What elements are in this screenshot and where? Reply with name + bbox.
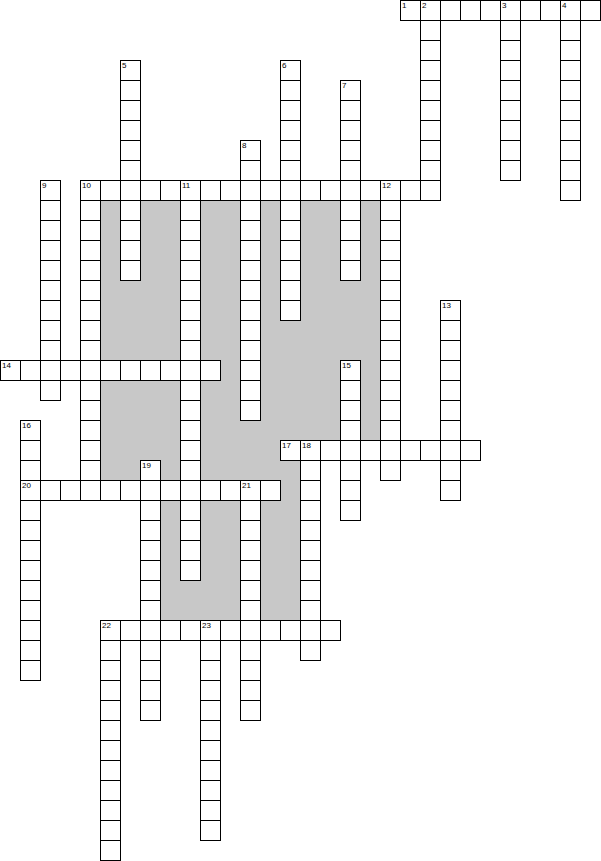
- crossword-cell[interactable]: [280, 160, 301, 181]
- crossword-cell[interactable]: [160, 360, 181, 381]
- crossword-cell[interactable]: [380, 240, 401, 261]
- crossword-cell[interactable]: [240, 640, 261, 661]
- crossword-cell[interactable]: [40, 200, 61, 221]
- crossword-cell[interactable]: [180, 620, 201, 641]
- crossword-cell[interactable]: [80, 440, 101, 461]
- crossword-grid: 1234567891011121314151617181920212223: [0, 0, 601, 861]
- crossword-cell[interactable]: [200, 180, 221, 201]
- crossword-cell[interactable]: [220, 480, 241, 501]
- crossword-cell[interactable]: [300, 560, 321, 581]
- crossword-cell[interactable]: [300, 180, 321, 201]
- crossword-cell[interactable]: [100, 720, 121, 741]
- crossword-cell[interactable]: [560, 40, 581, 61]
- crossword-cell[interactable]: [340, 460, 361, 481]
- crossword-cell[interactable]: [80, 420, 101, 441]
- crossword-cell[interactable]: [280, 440, 301, 461]
- crossword-cell[interactable]: [300, 620, 321, 641]
- crossword-cell[interactable]: [200, 360, 221, 381]
- crossword-cell[interactable]: [40, 300, 61, 321]
- crossword-cell[interactable]: [120, 220, 141, 241]
- crossword-cell[interactable]: [240, 500, 261, 521]
- crossword-cell[interactable]: [100, 700, 121, 721]
- crossword-cell[interactable]: [20, 560, 41, 581]
- crossword-cell[interactable]: [180, 540, 201, 561]
- crossword-cell[interactable]: [180, 220, 201, 241]
- crossword-cell[interactable]: [240, 260, 261, 281]
- crossword-cell[interactable]: [200, 780, 221, 801]
- crossword-cell[interactable]: [100, 760, 121, 781]
- crossword-cell[interactable]: [280, 140, 301, 161]
- crossword-cell[interactable]: [80, 300, 101, 321]
- crossword-cell[interactable]: [420, 80, 441, 101]
- crossword-cell[interactable]: [340, 380, 361, 401]
- crossword-cell[interactable]: [80, 240, 101, 261]
- crossword-cell[interactable]: [20, 440, 41, 461]
- crossword-cell[interactable]: [240, 160, 261, 181]
- crossword-cell[interactable]: [100, 180, 121, 201]
- crossword-cell[interactable]: [180, 520, 201, 541]
- crossword-cell[interactable]: [240, 280, 261, 301]
- crossword-cell[interactable]: [280, 200, 301, 221]
- crossword-cell[interactable]: [280, 300, 301, 321]
- crossword-cell[interactable]: [180, 360, 201, 381]
- crossword-cell[interactable]: [40, 360, 61, 381]
- crossword-cell[interactable]: [240, 600, 261, 621]
- crossword-cell[interactable]: [380, 460, 401, 481]
- crossword-cell[interactable]: [80, 460, 101, 481]
- crossword-cell[interactable]: [260, 620, 281, 641]
- crossword-cell[interactable]: [180, 200, 201, 221]
- crossword-cell[interactable]: [100, 740, 121, 761]
- crossword-cell[interactable]: [320, 180, 341, 201]
- crossword-cell[interactable]: [500, 40, 521, 61]
- crossword-cell[interactable]: [20, 520, 41, 541]
- crossword-cell[interactable]: [480, 0, 501, 21]
- crossword-cell[interactable]: [560, 0, 581, 21]
- crossword-cell[interactable]: [440, 480, 461, 501]
- crossword-cell[interactable]: [180, 340, 201, 361]
- crossword-cell[interactable]: [420, 0, 441, 21]
- crossword-cell[interactable]: [300, 540, 321, 561]
- crossword-cell[interactable]: [420, 20, 441, 41]
- crossword-cell[interactable]: [340, 240, 361, 261]
- crossword-cell[interactable]: [240, 240, 261, 261]
- crossword-cell[interactable]: [180, 280, 201, 301]
- crossword-cell[interactable]: [80, 200, 101, 221]
- crossword-cell[interactable]: [240, 660, 261, 681]
- crossword-cell[interactable]: [80, 220, 101, 241]
- crossword-cell[interactable]: [200, 660, 221, 681]
- crossword-cell[interactable]: [240, 560, 261, 581]
- crossword-cell[interactable]: [560, 180, 581, 201]
- shaded-region: [280, 460, 300, 620]
- crossword-cell[interactable]: [220, 620, 241, 641]
- crossword-cell[interactable]: [300, 600, 321, 621]
- crossword-cell[interactable]: [20, 540, 41, 561]
- crossword-cell[interactable]: [120, 60, 141, 81]
- crossword-cell[interactable]: [500, 160, 521, 181]
- crossword-cell[interactable]: [0, 360, 21, 381]
- crossword-cell[interactable]: [100, 620, 121, 641]
- crossword-cell[interactable]: [80, 340, 101, 361]
- crossword-cell[interactable]: [120, 240, 141, 261]
- crossword-cell[interactable]: [440, 340, 461, 361]
- crossword-cell[interactable]: [180, 460, 201, 481]
- crossword-cell[interactable]: [100, 360, 121, 381]
- crossword-cell[interactable]: [560, 80, 581, 101]
- crossword-cell[interactable]: [160, 620, 181, 641]
- crossword-cell[interactable]: [240, 680, 261, 701]
- crossword-cell[interactable]: [240, 400, 261, 421]
- crossword-cell[interactable]: [240, 540, 261, 561]
- crossword-cell[interactable]: [380, 300, 401, 321]
- crossword-cell[interactable]: [380, 360, 401, 381]
- crossword-cell[interactable]: [360, 440, 381, 461]
- crossword-cell[interactable]: [380, 340, 401, 361]
- crossword-cell[interactable]: [240, 140, 261, 161]
- crossword-cell[interactable]: [500, 120, 521, 141]
- crossword-cell[interactable]: [100, 480, 121, 501]
- crossword-cell[interactable]: [280, 180, 301, 201]
- crossword-cell[interactable]: [200, 640, 221, 661]
- crossword-cell[interactable]: [140, 500, 161, 521]
- crossword-cell[interactable]: [300, 460, 321, 481]
- crossword-cell[interactable]: [380, 320, 401, 341]
- crossword-cell[interactable]: [240, 700, 261, 721]
- crossword-cell[interactable]: [360, 180, 381, 201]
- crossword-cell[interactable]: [420, 440, 441, 461]
- crossword-cell[interactable]: [200, 820, 221, 841]
- crossword-cell[interactable]: [440, 460, 461, 481]
- crossword-cell[interactable]: [200, 800, 221, 821]
- crossword-cell[interactable]: [240, 360, 261, 381]
- crossword-cell[interactable]: [440, 400, 461, 421]
- crossword-cell[interactable]: [140, 460, 161, 481]
- crossword-cell[interactable]: [20, 580, 41, 601]
- crossword-cell[interactable]: [140, 540, 161, 561]
- crossword-cell[interactable]: [40, 340, 61, 361]
- crossword-cell[interactable]: [140, 480, 161, 501]
- crossword-cell[interactable]: [20, 640, 41, 661]
- crossword-cell[interactable]: [240, 180, 261, 201]
- crossword-cell[interactable]: [140, 560, 161, 581]
- crossword-cell[interactable]: [560, 120, 581, 141]
- crossword-cell[interactable]: [40, 260, 61, 281]
- crossword-cell[interactable]: [380, 280, 401, 301]
- crossword-cell[interactable]: [100, 660, 121, 681]
- crossword-cell[interactable]: [460, 0, 481, 21]
- crossword-cell[interactable]: [580, 0, 601, 21]
- crossword-cell[interactable]: [80, 400, 101, 421]
- crossword-cell[interactable]: [120, 80, 141, 101]
- crossword-cell[interactable]: [300, 580, 321, 601]
- crossword-cell[interactable]: [300, 500, 321, 521]
- crossword-cell[interactable]: [340, 360, 361, 381]
- crossword-cell[interactable]: [140, 660, 161, 681]
- crossword-cell[interactable]: [300, 640, 321, 661]
- crossword-cell[interactable]: [200, 480, 221, 501]
- crossword-cell[interactable]: [280, 60, 301, 81]
- crossword-cell[interactable]: [260, 480, 281, 501]
- crossword-cell[interactable]: [280, 120, 301, 141]
- crossword-cell[interactable]: [280, 620, 301, 641]
- crossword-cell[interactable]: [120, 100, 141, 121]
- crossword-cell[interactable]: [420, 60, 441, 81]
- crossword-cell[interactable]: [160, 480, 181, 501]
- crossword-cell[interactable]: [340, 200, 361, 221]
- crossword-cell[interactable]: [280, 260, 301, 281]
- crossword-cell[interactable]: [140, 600, 161, 621]
- crossword-cell[interactable]: [340, 440, 361, 461]
- crossword-cell[interactable]: [220, 180, 241, 201]
- crossword-cell[interactable]: [20, 420, 41, 441]
- crossword-cell[interactable]: [180, 400, 201, 421]
- crossword-cell[interactable]: [280, 80, 301, 101]
- crossword-cell[interactable]: [240, 220, 261, 241]
- crossword-cell[interactable]: [340, 80, 361, 101]
- crossword-cell[interactable]: [140, 580, 161, 601]
- crossword-cell[interactable]: [340, 500, 361, 521]
- crossword-cell[interactable]: [420, 180, 441, 201]
- crossword-cell[interactable]: [20, 480, 41, 501]
- crossword-cell[interactable]: [340, 140, 361, 161]
- crossword-cell[interactable]: [140, 360, 161, 381]
- crossword-cell[interactable]: [200, 700, 221, 721]
- crossword-cell[interactable]: [320, 620, 341, 641]
- crossword-cell[interactable]: [560, 60, 581, 81]
- crossword-cell[interactable]: [40, 240, 61, 261]
- crossword-cell[interactable]: [120, 160, 141, 181]
- crossword-cell[interactable]: [80, 380, 101, 401]
- crossword-cell[interactable]: [140, 520, 161, 541]
- crossword-cell[interactable]: [240, 300, 261, 321]
- crossword-cell[interactable]: [420, 160, 441, 181]
- crossword-cell[interactable]: [560, 20, 581, 41]
- crossword-cell[interactable]: [200, 680, 221, 701]
- crossword-cell[interactable]: [120, 180, 141, 201]
- crossword-cell[interactable]: [140, 180, 161, 201]
- crossword-cell[interactable]: [400, 440, 421, 461]
- crossword-cell[interactable]: [100, 780, 121, 801]
- crossword-cell[interactable]: [80, 180, 101, 201]
- crossword-cell[interactable]: [380, 440, 401, 461]
- crossword-cell[interactable]: [180, 560, 201, 581]
- crossword-cell[interactable]: [240, 580, 261, 601]
- crossword-cell[interactable]: [340, 420, 361, 441]
- crossword-cell[interactable]: [380, 200, 401, 221]
- crossword-cell[interactable]: [300, 480, 321, 501]
- crossword-cell[interactable]: [80, 360, 101, 381]
- crossword-cell[interactable]: [80, 320, 101, 341]
- crossword-cell[interactable]: [40, 220, 61, 241]
- crossword-cell[interactable]: [560, 140, 581, 161]
- crossword-cell[interactable]: [40, 280, 61, 301]
- crossword-cell[interactable]: [40, 480, 61, 501]
- crossword-cell[interactable]: [120, 200, 141, 221]
- crossword-cell[interactable]: [100, 680, 121, 701]
- crossword-cell[interactable]: [200, 620, 221, 641]
- crossword-cell[interactable]: [380, 420, 401, 441]
- crossword-cell[interactable]: [380, 380, 401, 401]
- crossword-cell[interactable]: [340, 220, 361, 241]
- crossword-cell[interactable]: [240, 320, 261, 341]
- crossword-cell[interactable]: [140, 620, 161, 641]
- crossword-cell[interactable]: [40, 320, 61, 341]
- crossword-cell[interactable]: [340, 260, 361, 281]
- crossword-cell[interactable]: [20, 620, 41, 641]
- crossword-cell[interactable]: [400, 0, 421, 21]
- crossword-cell[interactable]: [380, 400, 401, 421]
- crossword-cell[interactable]: [180, 480, 201, 501]
- crossword-cell[interactable]: [260, 180, 281, 201]
- crossword-cell[interactable]: [40, 380, 61, 401]
- crossword-cell[interactable]: [340, 400, 361, 421]
- crossword-cell[interactable]: [120, 360, 141, 381]
- crossword-cell[interactable]: [20, 660, 41, 681]
- crossword-cell[interactable]: [180, 260, 201, 281]
- crossword-cell[interactable]: [380, 220, 401, 241]
- crossword-cell[interactable]: [240, 200, 261, 221]
- crossword-cell[interactable]: [180, 380, 201, 401]
- crossword-cell[interactable]: [100, 640, 121, 661]
- crossword-cell[interactable]: [60, 480, 81, 501]
- crossword-cell[interactable]: [100, 800, 121, 821]
- crossword-cell[interactable]: [40, 180, 61, 201]
- crossword-cell[interactable]: [100, 820, 121, 841]
- crossword-cell[interactable]: [400, 180, 421, 201]
- crossword-cell[interactable]: [420, 140, 441, 161]
- crossword-cell[interactable]: [200, 720, 221, 741]
- crossword-cell[interactable]: [240, 380, 261, 401]
- crossword-cell[interactable]: [200, 740, 221, 761]
- crossword-cell[interactable]: [560, 100, 581, 121]
- crossword-cell[interactable]: [560, 160, 581, 181]
- crossword-cell[interactable]: [420, 120, 441, 141]
- crossword-cell[interactable]: [340, 180, 361, 201]
- crossword-cell[interactable]: [80, 480, 101, 501]
- crossword-cell[interactable]: [440, 320, 461, 341]
- crossword-cell[interactable]: [280, 240, 301, 261]
- crossword-cell[interactable]: [180, 440, 201, 461]
- crossword-cell[interactable]: [120, 620, 141, 641]
- crossword-cell[interactable]: [440, 300, 461, 321]
- crossword-cell[interactable]: [280, 280, 301, 301]
- crossword-cell[interactable]: [440, 360, 461, 381]
- crossword-cell[interactable]: [340, 480, 361, 501]
- crossword-cell[interactable]: [240, 520, 261, 541]
- crossword-cell[interactable]: [240, 620, 261, 641]
- crossword-cell[interactable]: [120, 480, 141, 501]
- crossword-cell[interactable]: [200, 760, 221, 781]
- crossword-cell[interactable]: [500, 60, 521, 81]
- crossword-cell[interactable]: [440, 420, 461, 441]
- crossword-cell[interactable]: [300, 440, 321, 461]
- crossword-cell[interactable]: [500, 20, 521, 41]
- crossword-cell[interactable]: [240, 480, 261, 501]
- crossword-cell[interactable]: [500, 80, 521, 101]
- crossword-cell[interactable]: [380, 260, 401, 281]
- crossword-cell[interactable]: [420, 40, 441, 61]
- crossword-cell[interactable]: [100, 840, 121, 861]
- crossword-cell[interactable]: [140, 680, 161, 701]
- crossword-cell[interactable]: [120, 120, 141, 141]
- crossword-cell[interactable]: [440, 380, 461, 401]
- crossword-cell[interactable]: [20, 460, 41, 481]
- crossword-cell[interactable]: [140, 700, 161, 721]
- crossword-cell[interactable]: [20, 600, 41, 621]
- crossword-cell[interactable]: [460, 440, 481, 461]
- crossword-cell[interactable]: [180, 180, 201, 201]
- crossword-cell[interactable]: [420, 100, 441, 121]
- crossword-cell[interactable]: [500, 100, 521, 121]
- crossword-cell[interactable]: [180, 420, 201, 441]
- crossword-cell[interactable]: [160, 180, 181, 201]
- crossword-cell[interactable]: [20, 500, 41, 521]
- crossword-cell[interactable]: [520, 0, 541, 21]
- crossword-cell[interactable]: [140, 640, 161, 661]
- crossword-cell[interactable]: [80, 280, 101, 301]
- crossword-cell[interactable]: [280, 100, 301, 121]
- crossword-cell[interactable]: [540, 0, 561, 21]
- crossword-cell[interactable]: [380, 180, 401, 201]
- crossword-cell[interactable]: [180, 320, 201, 341]
- crossword-cell[interactable]: [320, 440, 341, 461]
- crossword-cell[interactable]: [500, 0, 521, 21]
- crossword-cell[interactable]: [340, 120, 361, 141]
- crossword-cell[interactable]: [240, 340, 261, 361]
- crossword-cell[interactable]: [280, 220, 301, 241]
- crossword-cell[interactable]: [120, 140, 141, 161]
- crossword-cell[interactable]: [500, 140, 521, 161]
- crossword-cell[interactable]: [80, 260, 101, 281]
- crossword-cell[interactable]: [20, 360, 41, 381]
- crossword-cell[interactable]: [180, 500, 201, 521]
- crossword-cell[interactable]: [440, 440, 461, 461]
- crossword-cell[interactable]: [120, 260, 141, 281]
- crossword-cell[interactable]: [340, 160, 361, 181]
- crossword-cell[interactable]: [180, 240, 201, 261]
- crossword-cell[interactable]: [440, 0, 461, 21]
- crossword-cell[interactable]: [180, 300, 201, 321]
- crossword-cell[interactable]: [300, 520, 321, 541]
- crossword-cell[interactable]: [60, 360, 81, 381]
- crossword-cell[interactable]: [340, 100, 361, 121]
